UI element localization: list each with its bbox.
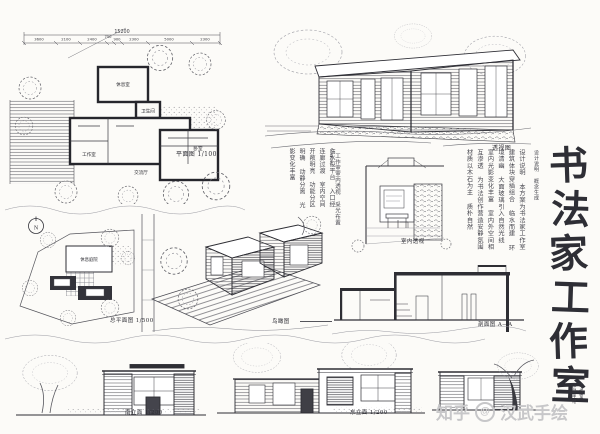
landscape-strip — [0, 330, 600, 346]
title-side-note: 设计说明 概念生成 — [526, 150, 539, 230]
presentation-sheet: 15200 3600 2100 2400 750 900 2300 5000 2… — [0, 0, 600, 434]
exterior-perspective-drawing — [263, 10, 535, 162]
north-arrow-icon: N — [29, 217, 44, 234]
elev-east-house — [233, 369, 413, 413]
elevation-east-label: 东立面 1/200 — [350, 408, 388, 416]
elevation-south-drawing — [12, 343, 210, 425]
plan-dim: 2300 — [129, 37, 139, 41]
axon-label-rule — [300, 321, 332, 322]
design-note-mid: 临水设平台 入口经连廊过渡 室内空间开敞明亮 功能分区明确 动静分离 光影变化丰… — [244, 148, 336, 212]
room-label-rest: 休息室 — [116, 81, 130, 88]
elevation-east-drawing — [213, 343, 431, 425]
watermark-handle: 汉武手绘 — [500, 399, 568, 424]
main-title: 书 法 家 工 作 室 — [540, 146, 598, 407]
interior-perspective-drawing — [342, 148, 454, 260]
north-letter: N — [34, 226, 39, 232]
plan-dim: 2100 — [61, 37, 71, 41]
plan-dim: 2300 — [200, 37, 210, 41]
site-courtyard-label: 休息庭院 — [80, 256, 98, 263]
plan-deck-hatch — [10, 100, 74, 184]
plan-dim: 2400 — [87, 37, 97, 41]
plan-label: 平面图 1/100 — [176, 149, 217, 158]
landscape-strip-2 — [0, 198, 250, 218]
plan-dim: 3600 — [34, 37, 44, 41]
title-char: 工 — [551, 277, 591, 319]
design-note-right: 设计说明 本方案为书法家工作室 建筑体块穿插组合 临水而建 环境清幽 大面玻璃引… — [450, 149, 526, 253]
section-drawing — [330, 260, 528, 340]
floor-plan-drawing: 15200 3600 2100 2400 750 900 2300 5000 2… — [8, 26, 240, 204]
watermark-site: 知乎 — [436, 399, 470, 424]
section-label: 剖面图 A—A — [478, 320, 513, 328]
watermark: 知乎 @ 汉武手绘 — [436, 399, 568, 424]
plan-dim: 900 — [113, 38, 121, 42]
room-label-studio: 工作室 — [82, 151, 96, 158]
title-char: 书 — [549, 145, 589, 187]
plan-overall-dim: 15200 — [114, 29, 129, 35]
seal-line: 汉武手绘 — [570, 383, 576, 413]
seal-line: 工作室 — [577, 383, 583, 413]
artist-seal: 汉武手绘 工作室 — [570, 383, 583, 413]
plan-dim: 5000 — [164, 37, 174, 41]
room-label-tea: 交流厅 — [134, 169, 148, 176]
room-label-bath: 卫生间 — [141, 108, 155, 115]
plan-dim: 750 — [104, 35, 112, 39]
perspective-house — [315, 50, 520, 142]
title-char: 作 — [549, 321, 589, 363]
title-char: 家 — [549, 233, 589, 275]
interior-label: 室内透视 — [401, 237, 425, 245]
axon-label: 鸟瞰图 — [272, 317, 290, 325]
zhihu-logo-icon: @ — [475, 402, 495, 422]
elevation-south-label: 南立面 1/200 — [125, 408, 163, 416]
title-char: 法 — [551, 189, 591, 231]
